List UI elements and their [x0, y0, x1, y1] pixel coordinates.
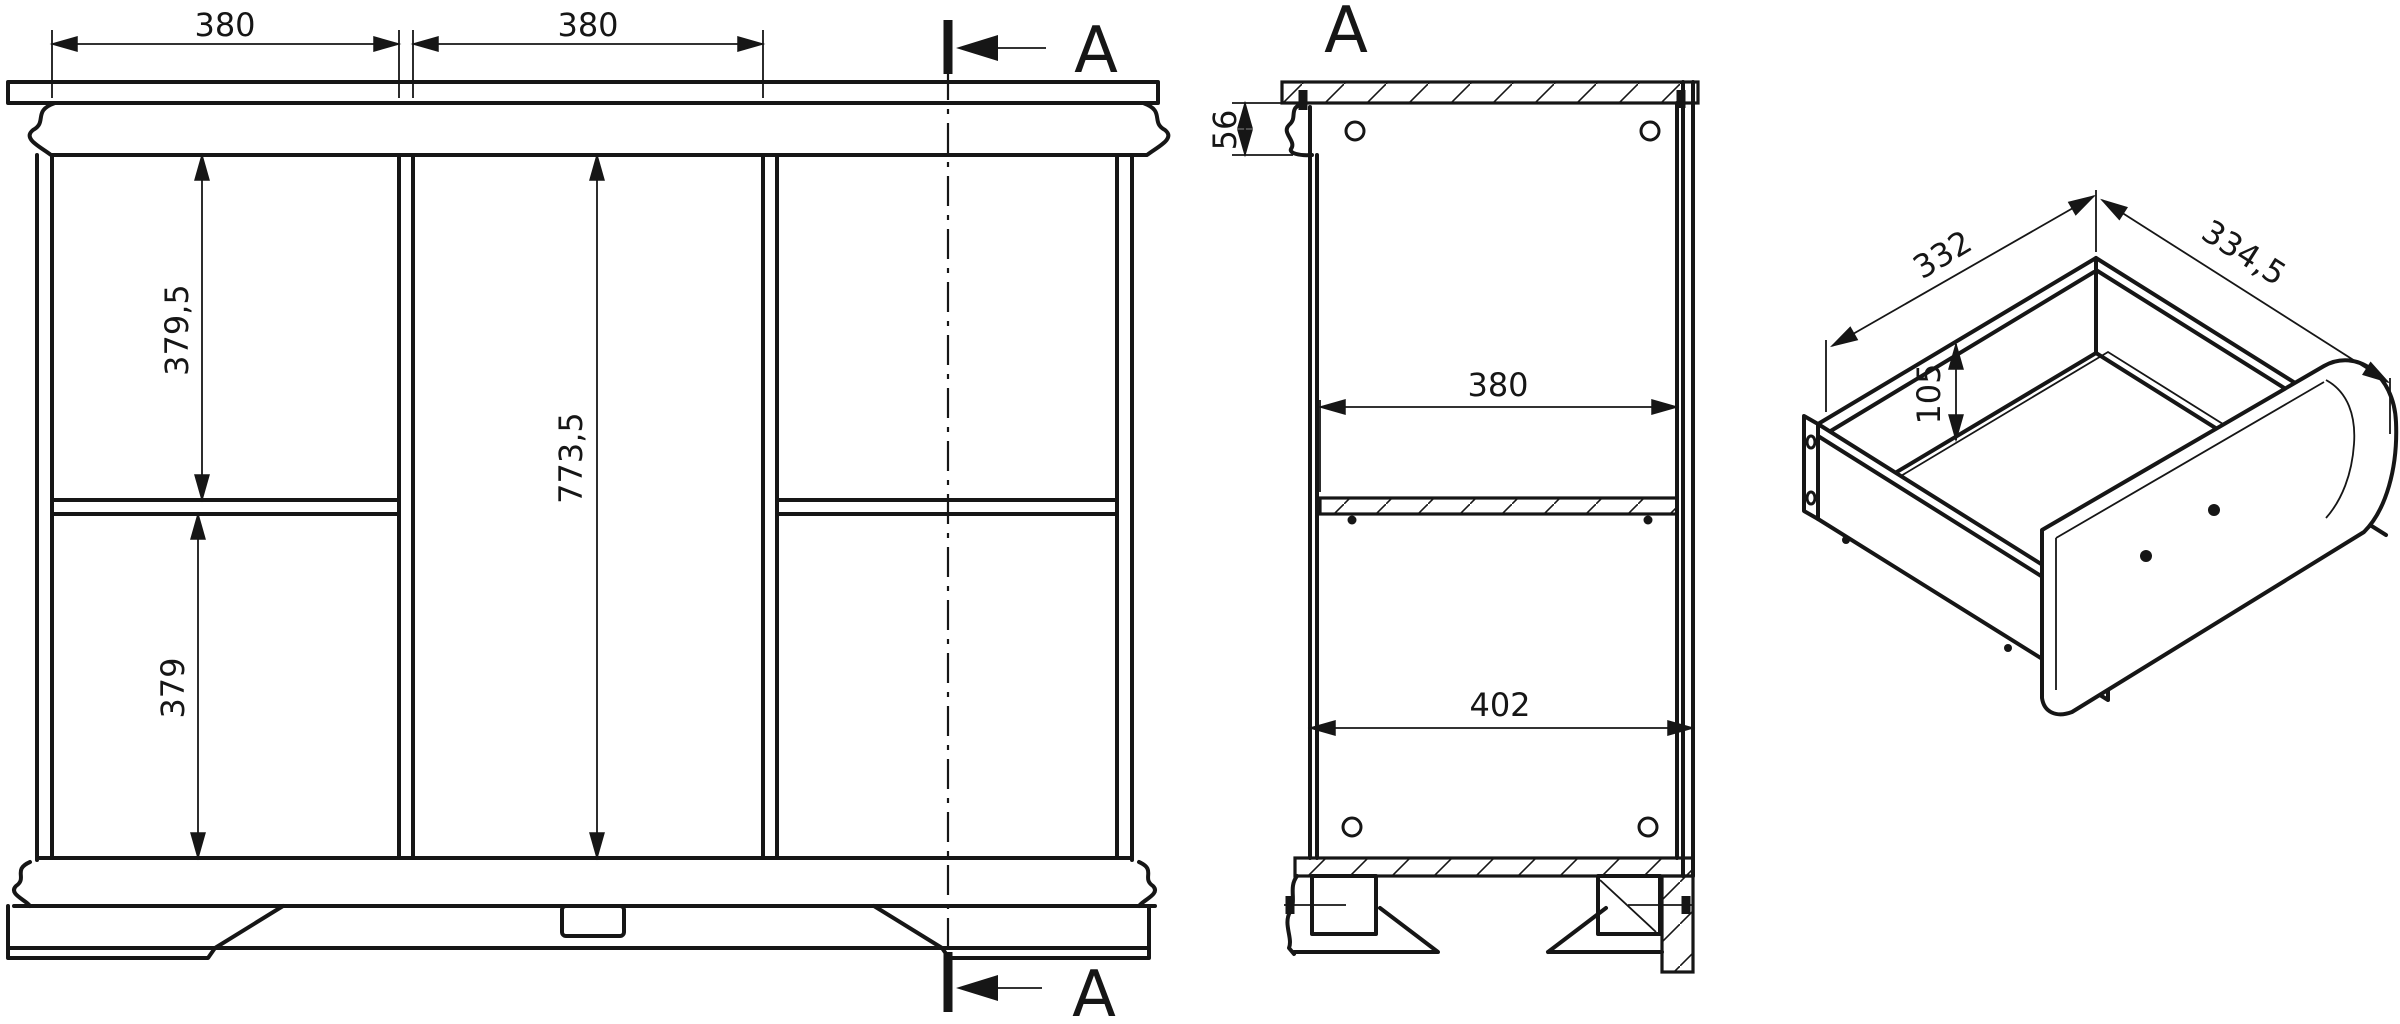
top-panel-cut: [1282, 82, 1698, 103]
section-arrow-top: [956, 35, 998, 61]
dim-drawer-width: 332: [1906, 223, 1978, 287]
dim-width-left: 380: [194, 6, 255, 44]
hole: [1346, 122, 1364, 140]
shelf-cut: [1320, 498, 1677, 514]
dim-drawer-depth: 334,5: [2195, 212, 2293, 293]
dim-crown: 56: [1206, 110, 1244, 151]
drawer-panel-hole: [2004, 644, 2012, 652]
partitions: [399, 155, 777, 858]
body-edges: [1310, 82, 1693, 876]
drawer-panel-hole: [1842, 536, 1850, 544]
back-plinth-cut: [1662, 876, 1693, 972]
drawer-front-hole: [2208, 504, 2220, 516]
hole: [1807, 436, 1815, 448]
dim-center: 773,5: [552, 412, 590, 504]
top-panel: [8, 82, 1158, 103]
front-view: 380 380 379,5 773,5 379 A A: [8, 6, 1168, 1024]
shelf-peg: [1348, 516, 1357, 525]
drawer-view: 332 334,5 105: [1804, 190, 2396, 714]
hole: [1639, 818, 1657, 836]
base-front-profile: [1287, 876, 1297, 954]
dim-upper-left: 379,5: [158, 284, 196, 376]
drawer-front-hole: [2140, 550, 2152, 562]
dim-base: 402: [1469, 686, 1530, 724]
crown-molding: [30, 103, 1169, 155]
dim-shelf: 380: [1467, 366, 1528, 404]
technical-drawing: 380 380 379,5 773,5 379 A A A: [0, 0, 2400, 1024]
hole: [1641, 122, 1659, 140]
section-label-bottom: A: [1072, 958, 1116, 1024]
base-molding: [14, 862, 1155, 906]
section-label-top: A: [1074, 14, 1118, 88]
drawing-sheet: 380 380 379,5 773,5 379 A A A: [0, 0, 2400, 1024]
hole: [1807, 492, 1815, 504]
right-foot: [874, 906, 1149, 958]
dim-lower-left: 379: [154, 657, 192, 718]
section-arrow-bottom: [956, 975, 998, 1001]
section-view-label: A: [1324, 0, 1368, 68]
left-foot: [8, 906, 283, 958]
drawer-front-panel: [2042, 360, 2396, 714]
dim-drawer-height: 105: [1910, 363, 1948, 424]
section-view: A 56 380 402: [1206, 0, 1698, 972]
bottom-panel-cut: [1295, 858, 1693, 876]
plinth-notch: [562, 906, 624, 936]
hole: [1343, 818, 1361, 836]
shelf-peg: [1644, 516, 1653, 525]
dim-width-right: 380: [557, 6, 618, 44]
